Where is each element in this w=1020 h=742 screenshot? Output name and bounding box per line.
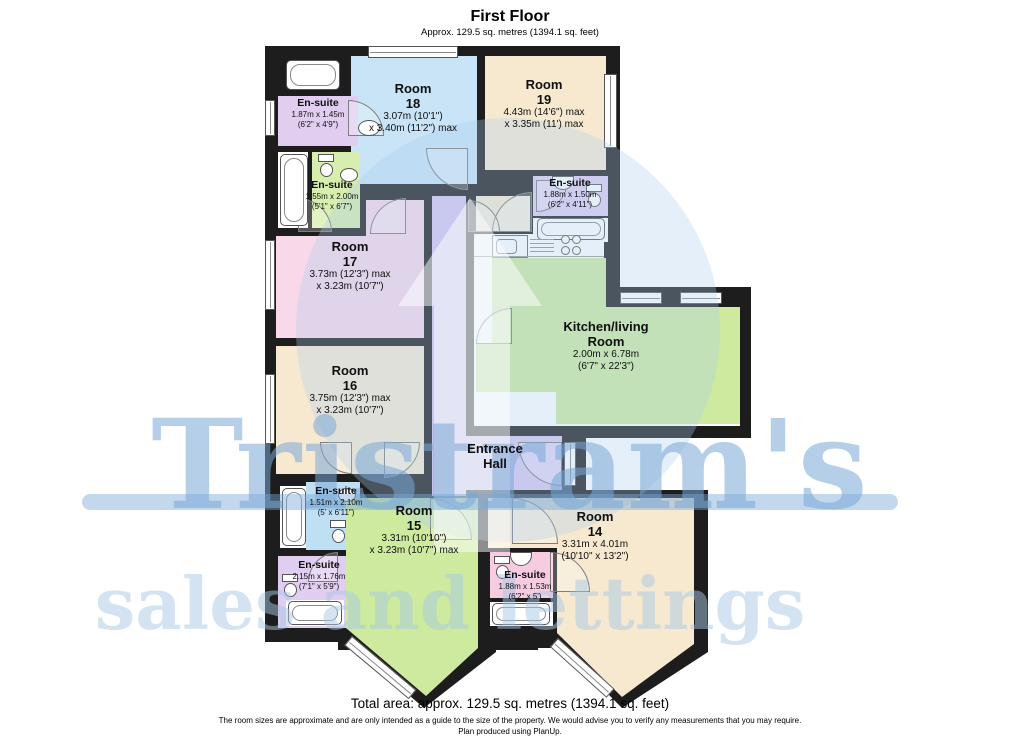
room-19-label: Room 19 4.43m (14'6") max x 3.35m (11') … bbox=[478, 78, 610, 131]
drainer-icon bbox=[530, 239, 554, 253]
toilet-icon bbox=[318, 154, 334, 177]
page-title: First Floor bbox=[0, 8, 1020, 26]
front-door-leaf bbox=[564, 442, 576, 486]
ensuite-label: En-suite 1.88m x 1.53m (6'2" x 5') bbox=[486, 570, 564, 602]
kitchen-living-label: Kitchen/living Room 2.00m x 6.78m (6'7" … bbox=[536, 320, 676, 373]
ensuite-label: En-suite 1.87m x 1.45m (6'2" x 4'9") bbox=[276, 98, 360, 130]
disclaimer-text: The room sizes are approximate and are o… bbox=[0, 716, 1020, 725]
ensuite-label: En-suite 1.88m x 1.50m (6'2" x 4'11") bbox=[528, 178, 612, 210]
window bbox=[620, 292, 662, 304]
total-area-text: Total area: approx. 129.5 sq. metres (13… bbox=[0, 696, 1020, 711]
kitchen-sink-icon bbox=[492, 235, 528, 258]
produced-text: Plan produced using PlanUp. bbox=[0, 727, 1020, 736]
room-16-label: Room 16 3.75m (12'3") max x 3.23m (10'7"… bbox=[274, 364, 426, 417]
floorplan-page: First Floor Approx. 129.5 sq. metres (13… bbox=[0, 0, 1020, 742]
window bbox=[368, 46, 458, 58]
bath-icon bbox=[286, 60, 340, 90]
room-17-label: Room 17 3.73m (12'3") max x 3.23m (10'7"… bbox=[274, 240, 426, 293]
room-14-label: Room 14 3.31m x 4.01m (10'10" x 13'2") bbox=[502, 510, 688, 563]
ensuite-label: En-suite 2.15m x 1.76m (7'1" x 5'9") bbox=[280, 560, 358, 592]
room-18-label: Room 18 3.07m (10'1") x 3.40m (11'2") ma… bbox=[348, 82, 478, 135]
hob-icon bbox=[558, 234, 584, 256]
bath-icon bbox=[288, 601, 342, 625]
counter-edge bbox=[474, 256, 604, 257]
ensuite-label: En-suite 1.51m x 2.10m (5' x 6'11") bbox=[298, 486, 374, 518]
window bbox=[680, 292, 722, 304]
ensuite-label: En-suite 1.55m x 2.00m (5'1" x 6'7") bbox=[294, 180, 370, 212]
window bbox=[265, 100, 275, 136]
bath-icon bbox=[492, 603, 550, 625]
entrance-hall-label: Entrance Hall bbox=[434, 442, 556, 471]
page-subtitle: Approx. 129.5 sq. metres (1394.1 sq. fee… bbox=[0, 27, 1020, 38]
toilet-icon bbox=[330, 520, 346, 543]
